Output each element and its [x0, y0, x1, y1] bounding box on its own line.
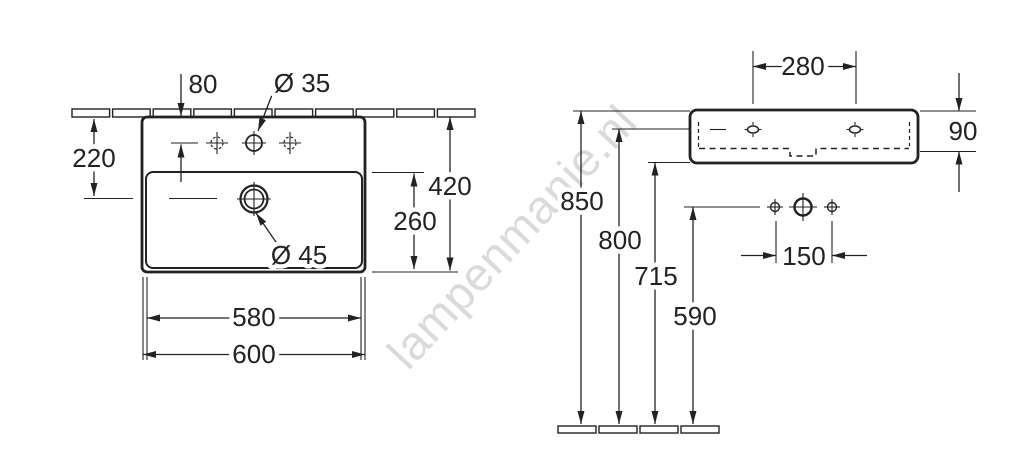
dim-label-basin-depth: 260	[393, 206, 436, 236]
dim-label-underside-height: 715	[634, 261, 677, 291]
supply-connection-left	[767, 199, 783, 215]
front-view: 280 90 850 800 715	[558, 51, 977, 433]
dim-label-body-height: 90	[949, 116, 978, 146]
basin-outline-front	[690, 110, 918, 163]
dim-rim-height: 850	[560, 111, 603, 424]
floor-hatching	[558, 426, 719, 433]
dim-label-supply-spacing: 150	[782, 241, 825, 271]
dim-label-mounting-height: 800	[598, 225, 641, 255]
dim-label-total-depth: 420	[428, 171, 471, 201]
dim-label-inner-width: 580	[232, 302, 275, 332]
dim-connection-height: 590	[673, 207, 716, 424]
drain-connection	[789, 193, 817, 221]
drawing-canvas: 80 Ø 35 220 420 260	[0, 0, 1024, 470]
dim-supply-spacing: 150	[741, 241, 867, 271]
dim-label-tap-diameter: Ø 35	[274, 68, 330, 98]
dim-label-rim-height: 850	[560, 186, 603, 216]
technical-drawing-page: lampenmanie.nl	[0, 0, 1024, 470]
dim-mounting-hole-spacing: 280	[753, 51, 856, 81]
dim-inner-width: 580	[147, 302, 361, 332]
dim-label-back-to-drain: 220	[72, 143, 115, 173]
dim-outer-width: 600	[143, 339, 365, 369]
top-view: 80 Ø 35 220 420 260	[72, 68, 475, 369]
dim-label-drain-diameter: Ø 45	[271, 240, 327, 270]
supply-connection-right	[824, 199, 840, 215]
dim-label-connection-height: 590	[673, 301, 716, 331]
dim-total-depth: 420	[428, 117, 471, 271]
dim-underside-height: 715	[634, 163, 677, 425]
dim-label-tap-offset: 80	[189, 69, 218, 99]
dim-back-to-drain: 220	[72, 119, 115, 196]
dim-label-mounting-hole-spacing: 280	[781, 51, 824, 81]
dim-body-height: 90	[949, 73, 978, 192]
dim-label-outer-width: 600	[232, 339, 275, 369]
